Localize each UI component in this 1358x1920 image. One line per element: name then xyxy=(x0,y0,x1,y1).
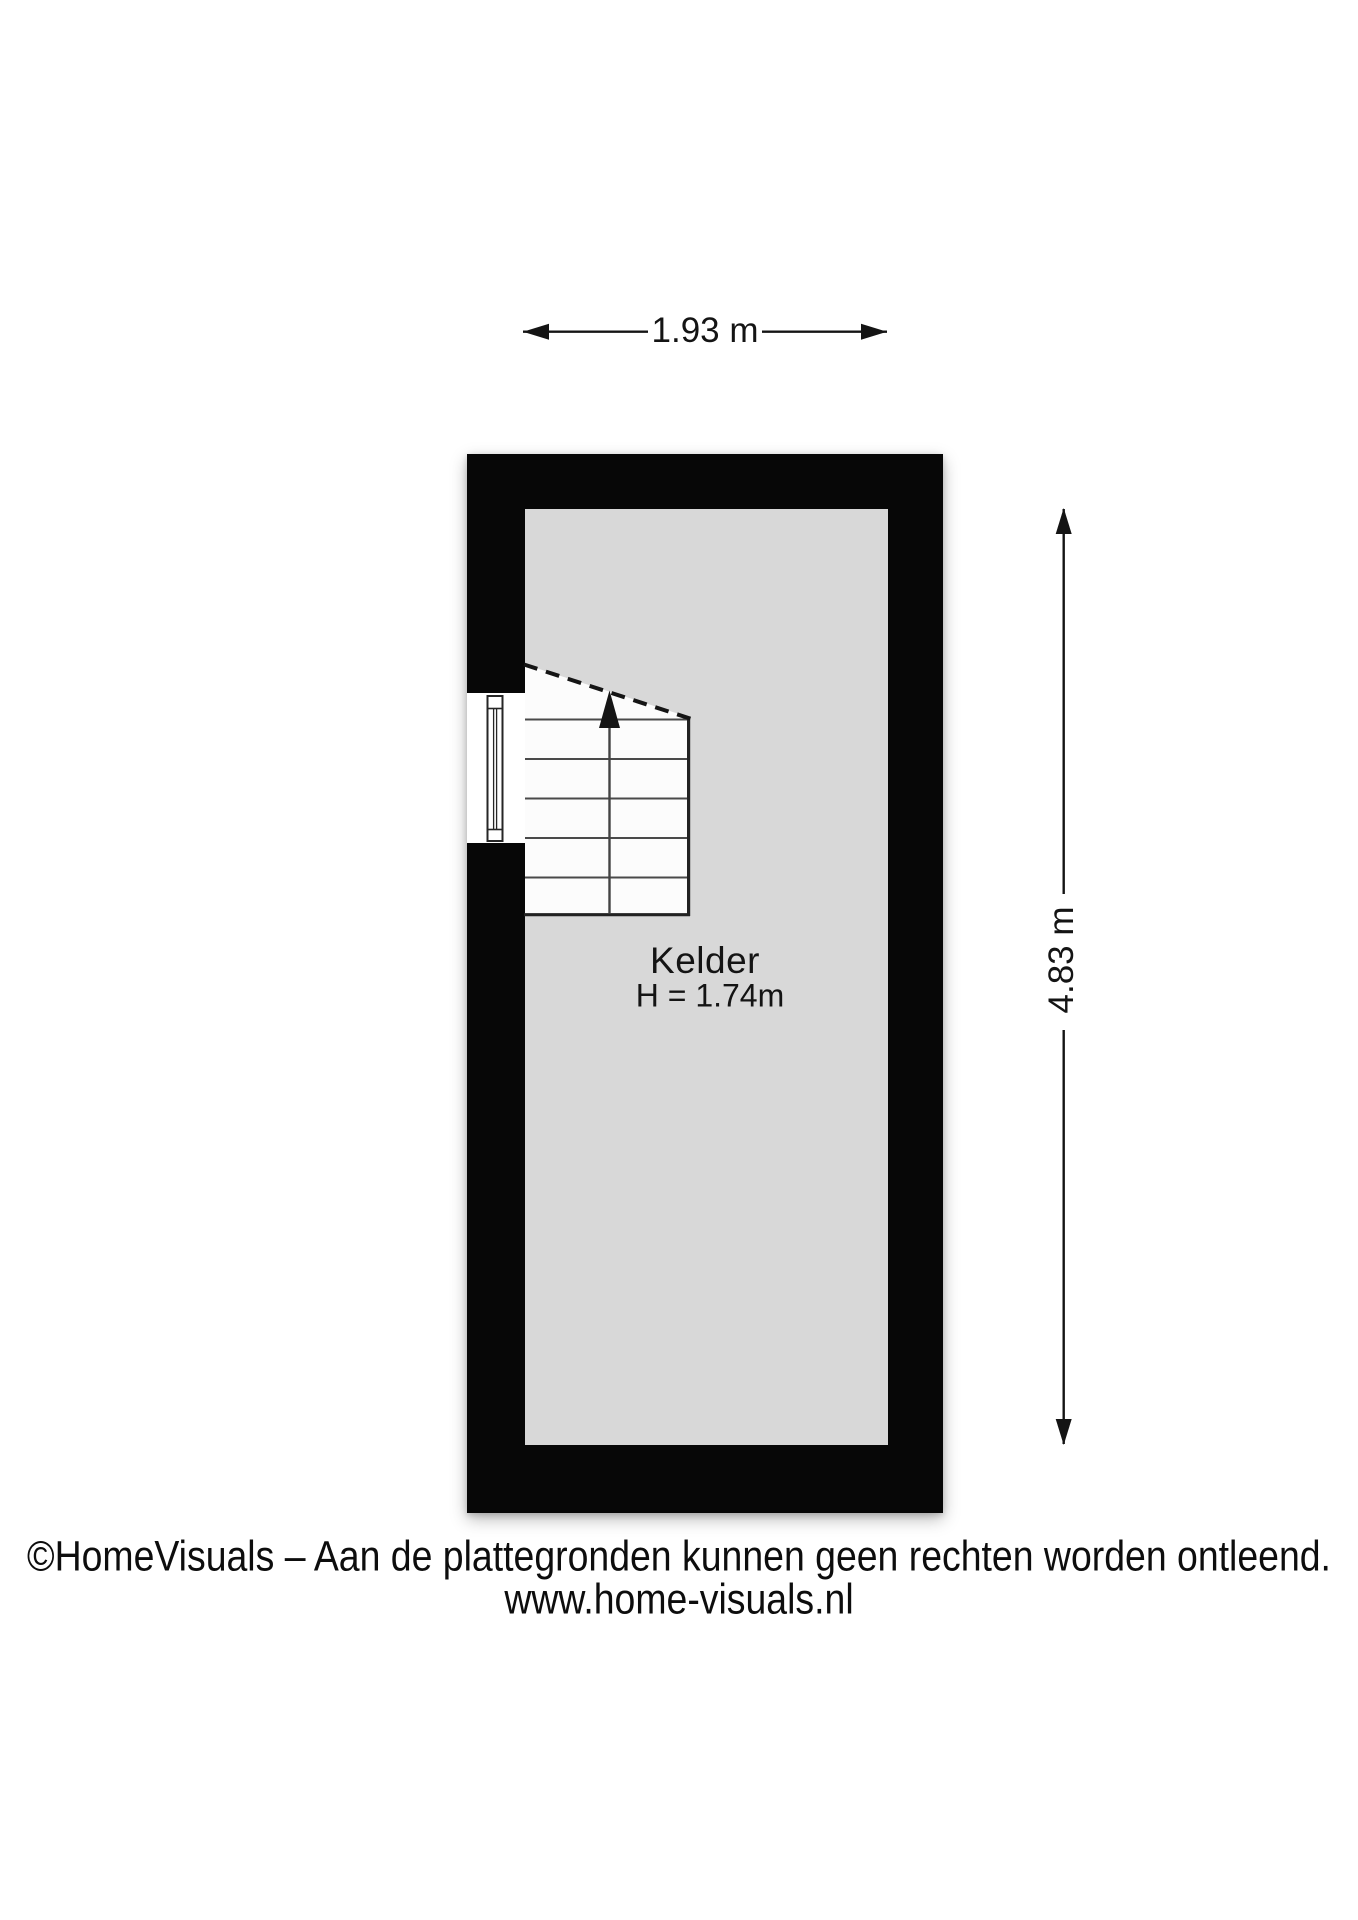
room-height-label: H = 1.74m xyxy=(636,978,785,1015)
arrow-left-icon xyxy=(523,324,549,340)
arrow-down-icon xyxy=(1056,1419,1072,1445)
floorplan-page: 1.93 m 4.83 m Kelder H = 1.74m ©HomeVisu… xyxy=(0,0,1358,1920)
arrow-up-icon xyxy=(1056,508,1072,534)
width-dimension-label: 1.93 m xyxy=(652,311,759,351)
footer-website: www.home-visuals.nl xyxy=(504,1576,853,1625)
footer-copyright: ©HomeVisuals – Aan de plattegronden kunn… xyxy=(27,1533,1331,1582)
window-opening xyxy=(467,693,525,843)
height-dimension-label: 4.83 m xyxy=(1042,907,1082,1014)
room-label: Kelder xyxy=(650,940,760,982)
arrow-right-icon xyxy=(861,324,887,340)
